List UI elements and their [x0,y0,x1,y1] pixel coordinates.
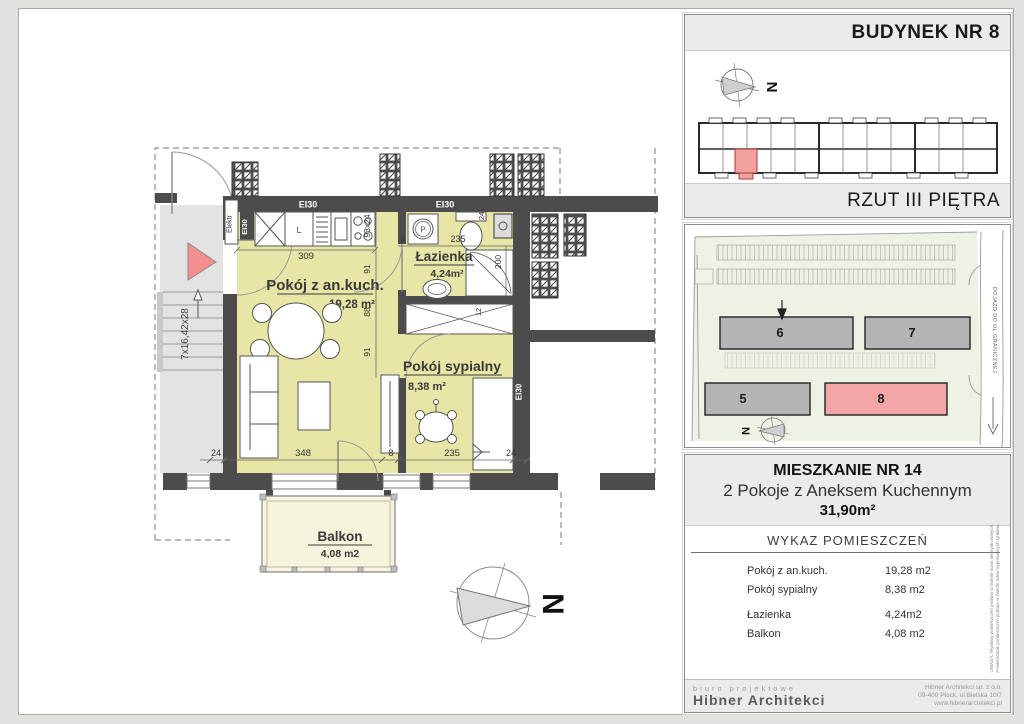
room-name: Balkon [317,529,362,544]
washbasin [423,280,451,299]
apartment-header: MIESZKANIE NR 14 2 Pokoje z Aneksem Kuch… [685,455,1010,526]
electrical-label: Elektr [227,214,234,233]
building-5 [705,383,810,415]
svg-text:348: 348 [295,448,311,459]
building-8-label: 8 [877,391,884,406]
washer-label: P [420,226,425,235]
building-overview-plan: N [685,51,1010,182]
north-compass: N [450,563,569,643]
table-row: Pokój z an.kuch. 19,28 m2 [685,562,1010,581]
chair [323,304,342,323]
building-7 [865,317,970,349]
svg-text:24: 24 [506,448,516,458]
staircase-corridor: 7x16,42x28 [155,152,234,473]
building-6 [720,317,853,349]
fire-rating-label: EI30 [240,219,249,234]
dim-label: 309 [298,251,314,262]
north-letter: N [739,427,751,435]
building-8 [825,383,947,415]
building-title: BUDYNEK NR 8 [685,15,1010,51]
road-arrow-icon [988,397,998,434]
room-name: Pokój sypialny [403,358,501,374]
panel-building: BUDYNEK NR 8 N [684,14,1011,218]
apartment-total-area: 31,90m² [689,502,1006,519]
svg-text:91: 91 [362,347,372,357]
divider [691,552,1000,553]
svg-text:200: 200 [493,255,503,269]
sofa [240,356,278,458]
panel-site: 6 7 5 8 DOJAZD DO UL.GRANICZNEJ N [684,224,1011,448]
balcony: Balkon 4,08 m2 [260,490,397,572]
floor-plan: 7x16,42x28 [0,0,684,724]
building-subtitle: RZUT III PIĘTRA [685,183,1010,217]
fire-rating-label: EI30 [515,383,524,400]
svg-text:235: 235 [444,448,460,459]
studio-logo: biuro projektowe Hibner Architekci [693,684,825,708]
svg-text:24: 24 [211,448,221,458]
north-letter: N [536,593,569,615]
room-area: 4,08 m2 [321,548,360,560]
table-row: Balkon 4,08 m2 [685,625,1010,644]
mini-compass: N [715,63,780,107]
svg-text:91: 91 [362,264,372,274]
svg-text:235: 235 [450,234,465,244]
room-area: 8,38 m² [408,381,446,393]
svg-text:24: 24 [477,212,486,220]
chair [321,340,340,359]
title-block-footer: biuro projektowe Hibner Architekci Hibne… [685,679,1010,712]
kitchen-counter [255,212,375,246]
site-plan: 6 7 5 8 DOJAZD DO UL.GRANICZNEJ N [685,225,1010,447]
studio-address: Hibner Architekci sp. z o.o. 09-400 Płoc… [918,684,1002,708]
building-6-label: 6 [776,325,783,340]
table-row: Łazienka 4,24m2 [685,606,1010,625]
apartment-subtitle: 2 Pokoje z Aneksem Kuchennym [689,481,1006,501]
room-name: Łazienka [415,249,473,264]
svg-text:8: 8 [401,234,406,244]
fire-rating-label: EI30 [436,200,455,210]
north-letter: N [763,82,780,93]
stairs-label: 7x16,42x28 [180,308,191,360]
apartment-title: MIESZKANIE NR 14 [689,462,1006,480]
road-label: DOJAZD DO UL.GRANICZNEJ [991,287,997,373]
room-name: Pokój z an.kuch. [266,277,384,294]
fire-rating-label: EI30 [299,200,318,210]
room-area: 4,24m² [430,268,464,280]
svg-text:93x24: 93x24 [362,214,372,237]
panel-apartment-info: MIESZKANIE NR 14 2 Pokoje z Aneksem Kuch… [684,454,1011,713]
svg-text:12: 12 [474,308,483,316]
measurement-note: UWAGA: Wymiary pomieszczeń podano w świe… [989,523,1001,673]
svg-text:8: 8 [388,448,393,458]
fridge-label: L [296,225,301,235]
room-schedule: WYKAZ POMIESZCZEŃ Pokój z an.kuch. 19,28… [685,526,1010,675]
highlighted-unit [735,149,757,179]
chair [253,304,272,323]
coffee-table [298,382,330,430]
dining-table [268,303,324,359]
building-7-label: 7 [908,325,915,340]
building-5-label: 5 [739,391,746,406]
table-row: Pokój sypialny 8,38 m2 [685,581,1010,600]
room-schedule-title: WYKAZ POMIESZCZEŃ [685,533,1010,548]
